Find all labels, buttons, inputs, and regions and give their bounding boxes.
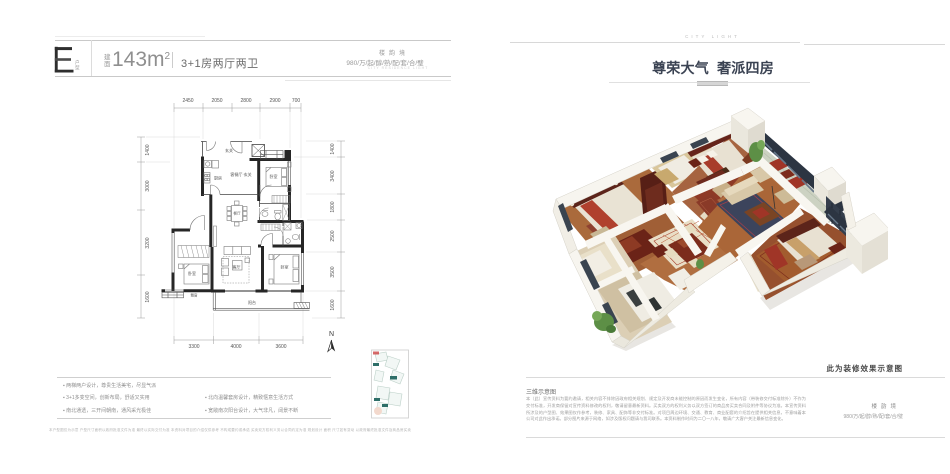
svg-text:2450: 2450 xyxy=(182,98,193,104)
svg-text:4000: 4000 xyxy=(230,344,241,350)
svg-text:客厅: 客厅 xyxy=(233,264,241,270)
svg-text:1600: 1600 xyxy=(145,291,151,302)
svg-text:1800: 1800 xyxy=(330,201,336,212)
svg-text:飘窗: 飘窗 xyxy=(191,293,198,298)
svg-text:1600: 1600 xyxy=(330,299,336,310)
svg-text:玄关: 玄关 xyxy=(225,147,233,153)
svg-text:2050: 2050 xyxy=(211,98,222,104)
svg-text:2500: 2500 xyxy=(330,230,336,241)
svg-text:3000: 3000 xyxy=(145,180,151,191)
svg-text:3400: 3400 xyxy=(330,170,336,181)
svg-text:1400: 1400 xyxy=(145,144,151,155)
svg-text:型: 型 xyxy=(75,64,80,70)
svg-text:1400: 1400 xyxy=(330,143,336,154)
svg-text:卧室: 卧室 xyxy=(281,264,289,270)
svg-text:卧室: 卧室 xyxy=(188,270,196,276)
svg-text:700: 700 xyxy=(292,98,301,104)
svg-text:客餐厅·玄关: 客餐厅·玄关 xyxy=(230,171,251,177)
svg-text:N: N xyxy=(329,331,334,338)
svg-text:3600: 3600 xyxy=(275,344,286,350)
svg-text:卧室: 卧室 xyxy=(270,173,278,179)
svg-text:餐厅: 餐厅 xyxy=(233,211,241,216)
svg-text:3300: 3300 xyxy=(188,344,199,350)
svg-text:3500: 3500 xyxy=(330,266,336,277)
svg-text:阳台: 阳台 xyxy=(248,299,256,305)
svg-text:3200: 3200 xyxy=(145,237,151,248)
svg-text:2900: 2900 xyxy=(269,98,280,104)
svg-text:厨房: 厨房 xyxy=(214,175,222,181)
svg-text:2800: 2800 xyxy=(240,98,251,104)
